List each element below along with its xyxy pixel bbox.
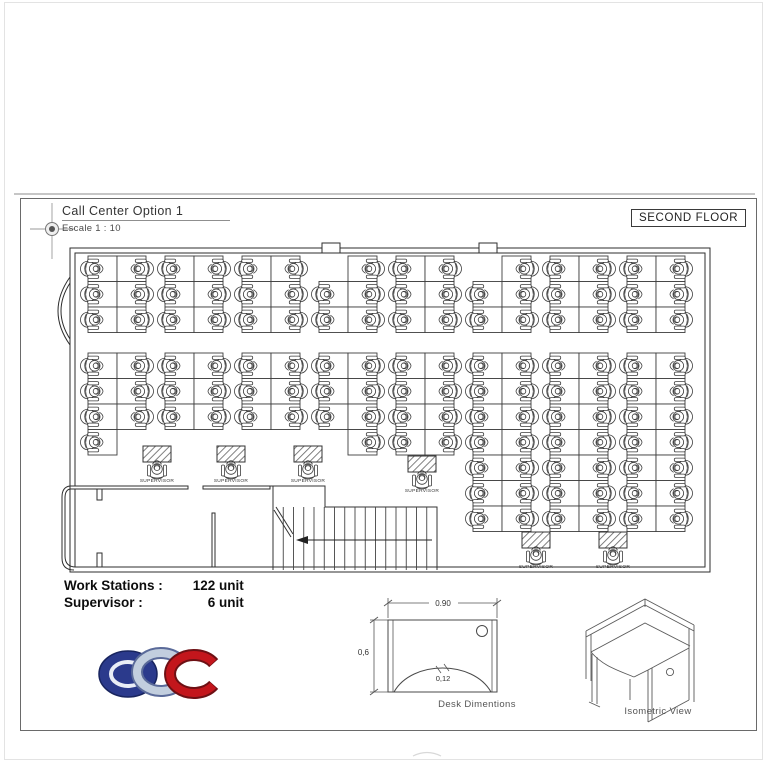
sheet-frame (20, 198, 757, 731)
title-block: Call Center Option 1 Escale 1 : 10 (62, 204, 230, 234)
drawing-scale: Escale 1 : 10 (62, 223, 230, 234)
supervisors-label: Supervisor : (64, 594, 166, 611)
workstations-value: 122 unit (170, 577, 244, 594)
sheet-shadow (14, 193, 755, 195)
drawing-title: Call Center Option 1 (62, 204, 230, 218)
legend-supervisors-row: Supervisor : 6 unit (64, 594, 244, 611)
workstations-label: Work Stations : (64, 577, 166, 594)
title-underline (62, 220, 230, 221)
legend: Work Stations : 122 unit Supervisor : 6 … (64, 577, 244, 611)
floor-label: SECOND FLOOR (631, 209, 746, 227)
supervisors-value: 6 unit (170, 594, 244, 611)
legend-workstations-row: Work Stations : 122 unit (64, 577, 244, 594)
